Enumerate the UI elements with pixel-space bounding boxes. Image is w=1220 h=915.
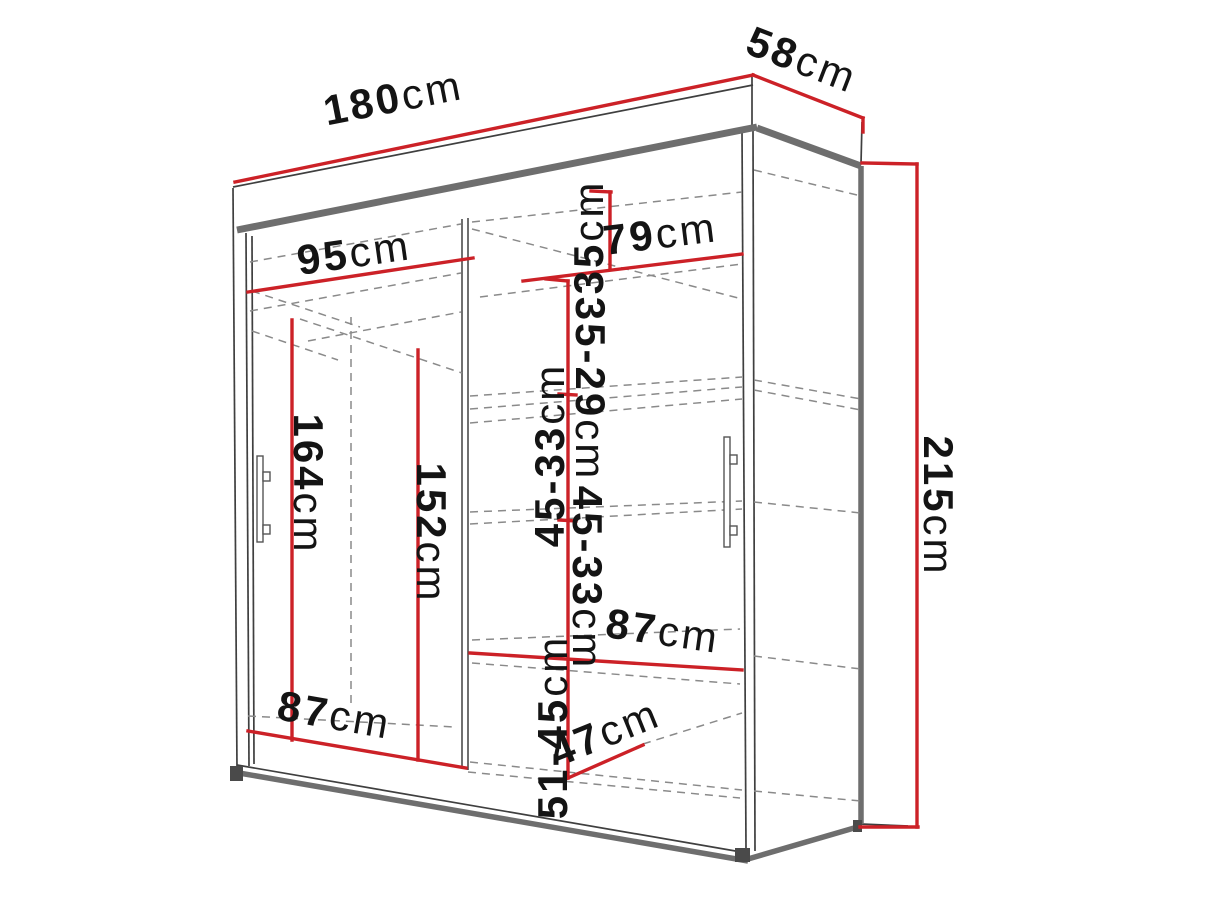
bottom-front-thick-edge xyxy=(239,773,748,861)
handle-tab xyxy=(730,526,737,535)
side-bottom-thick-edge xyxy=(748,826,861,859)
hidden-edge-line xyxy=(754,502,861,513)
dim-label-inner-hanging-height: 152cm xyxy=(408,462,455,603)
side-top-thick-edge xyxy=(757,128,861,166)
hidden-edge-line xyxy=(754,791,861,801)
hidden-edge-line xyxy=(754,170,861,196)
top-edge-line xyxy=(233,85,753,187)
diagram-canvas: 180cm 58cm 215cm 95cm 79cm 35cm 35-29cm … xyxy=(0,0,1220,915)
dim-label-right-shelf-width: 87cm xyxy=(603,599,723,662)
left-inner-edge-1 xyxy=(246,233,249,766)
dim-label-overall-depth: 58cm xyxy=(740,17,864,102)
hidden-edge-line xyxy=(252,331,338,360)
left-outer-edge xyxy=(233,188,237,770)
right-door-outer-edge xyxy=(753,130,755,851)
dim-label-right-top-width: 79cm xyxy=(600,203,720,264)
dim-label-upper-shelf-gap: 35-29cm xyxy=(567,297,614,481)
dim-label-left-hanging-height: 164cm xyxy=(285,413,332,554)
dim-tick xyxy=(862,163,917,164)
foot-right xyxy=(735,848,750,862)
hidden-edge-line xyxy=(754,390,861,410)
dim-label-left-top-width: 95cm xyxy=(294,221,414,284)
handle-bar xyxy=(724,437,730,547)
wardrobe-dimension-diagram: 180cm 58cm 215cm 95cm 79cm 35cm 35-29cm … xyxy=(0,0,1220,915)
hidden-edge-line xyxy=(308,312,461,341)
hidden-edge-line xyxy=(250,273,461,311)
dim-line-overall-width xyxy=(235,75,753,182)
handle-tab xyxy=(730,455,737,464)
bottom-edge-line xyxy=(237,765,747,853)
dim-label-overall-width: 180cm xyxy=(320,61,467,134)
hidden-edge-line xyxy=(754,380,861,399)
handle-bar xyxy=(257,456,263,542)
handle-tab xyxy=(263,472,270,481)
door-handle-left xyxy=(257,456,270,542)
foot-left xyxy=(230,766,243,781)
left-inner-edge-2 xyxy=(252,236,254,764)
right-door-inner-edge xyxy=(742,131,746,849)
hidden-edge-line xyxy=(754,656,861,669)
dim-label-top-shelf-gap: 35cm xyxy=(565,180,612,295)
handle-tab xyxy=(263,525,270,534)
door-handle-right xyxy=(724,437,737,547)
dim-label-overall-height: 215cm xyxy=(915,435,962,576)
